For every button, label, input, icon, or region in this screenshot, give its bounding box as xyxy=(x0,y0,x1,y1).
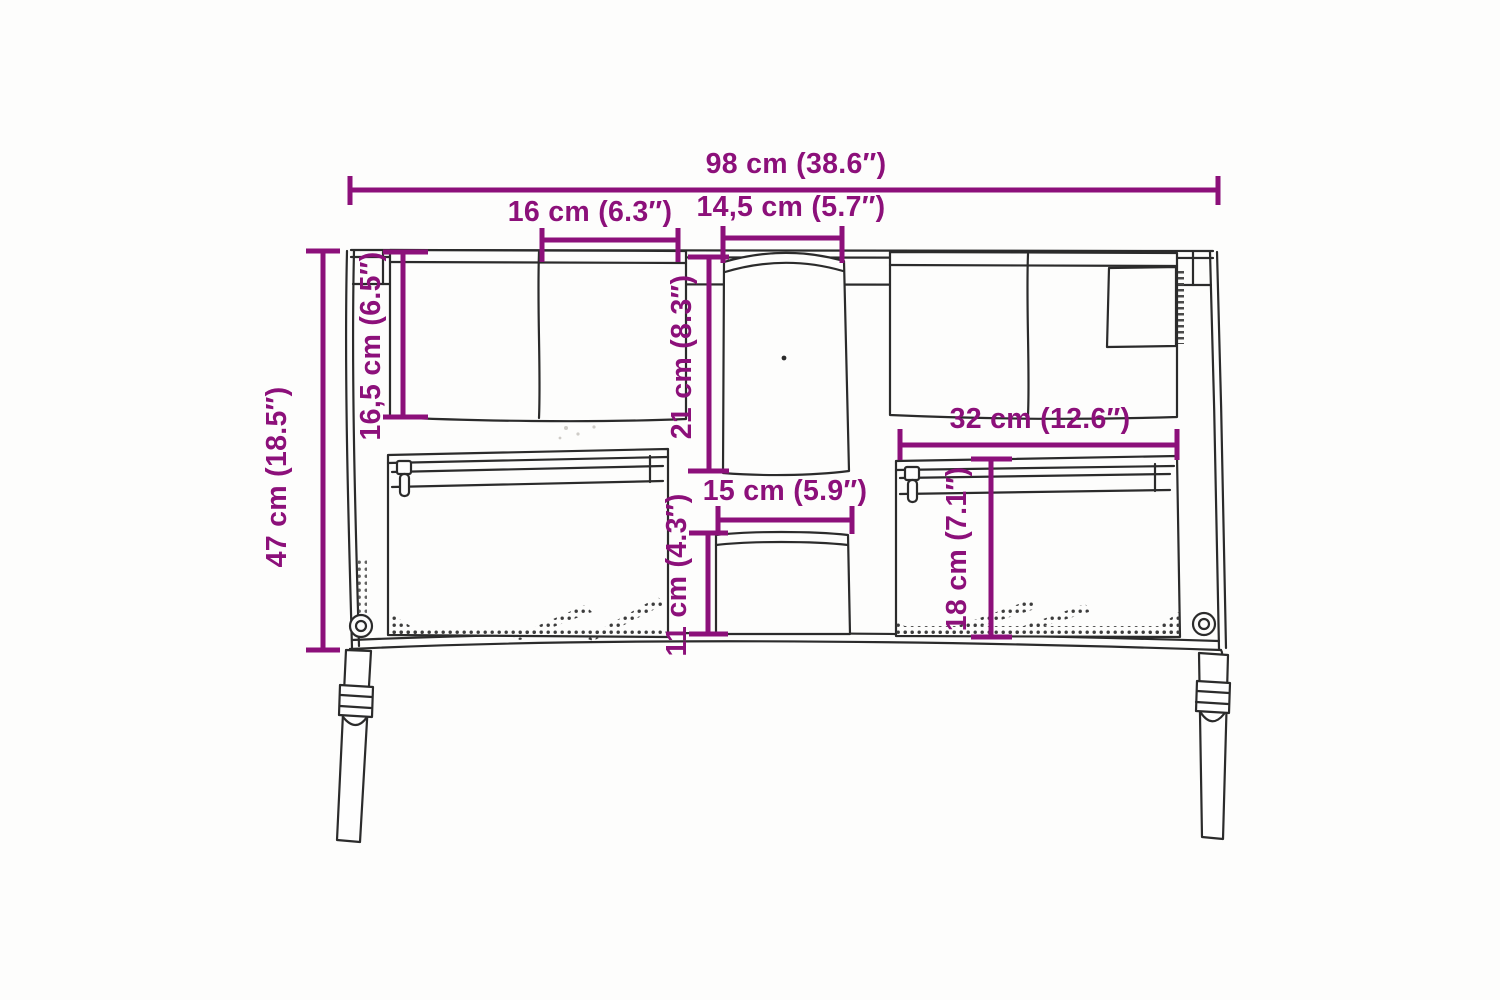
center-pocket xyxy=(723,253,849,475)
right-grommet xyxy=(1193,613,1215,635)
top-left-open-pocket xyxy=(390,250,686,421)
dim-total-height-label: 47 cm (18.5″) xyxy=(261,387,293,568)
left-zipper-slider xyxy=(397,461,411,496)
dim-bottom-center-pocket-width: 15 cm (5.9″) xyxy=(703,475,868,534)
dim-top-left-pocket-depth-label: 16,5 cm (6.5″) xyxy=(355,252,387,441)
organizer-dimension-drawing: 98 cm (38.6″) 16 cm (6.3″) 14,5 cm (5.7″… xyxy=(0,0,1500,1000)
organizer-line-art xyxy=(337,250,1230,842)
bottom-center-pocket xyxy=(716,532,850,634)
dim-center-pocket-depth-label: 21 cm (8.3″) xyxy=(666,275,698,440)
left-grommet xyxy=(350,615,372,637)
dim-center-pocket-depth: 21 cm (8.3″) xyxy=(666,257,729,471)
dim-total-height: 47 cm (18.5″) xyxy=(261,251,340,650)
bottom-left-zip-pocket xyxy=(358,449,668,641)
dim-top-center-pocket-width-label: 14,5 cm (5.7″) xyxy=(697,191,886,223)
right-strap xyxy=(1196,653,1230,839)
dim-bottom-center-pocket-width-label: 15 cm (5.9″) xyxy=(703,475,868,507)
dimension-diagram-canvas: 98 cm (38.6″) 16 cm (6.3″) 14,5 cm (5.7″… xyxy=(0,0,1500,1000)
panel-right-edge xyxy=(1210,252,1226,649)
top-left-pocket-divider xyxy=(538,252,539,418)
bottom-right-zip-pocket xyxy=(896,456,1180,639)
dim-top-left-pocket-width-label: 16 cm (6.3″) xyxy=(508,196,673,228)
top-right-pocket-divider xyxy=(1027,254,1028,415)
center-pocket-snap-dot xyxy=(782,356,787,361)
top-right-open-pocket xyxy=(890,252,1181,419)
dim-bottom-center-pocket-depth-label: 11 cm (4.3″) xyxy=(661,493,693,656)
right-zipper-slider xyxy=(905,467,919,502)
left-strap xyxy=(337,650,373,842)
dim-total-width-label: 98 cm (38.6″) xyxy=(706,148,887,180)
dim-right-zip-pocket-width-label: 32 cm (12.6″) xyxy=(950,403,1131,435)
dim-right-zip-pocket-depth-label: 18 cm (7.1″) xyxy=(941,467,973,632)
card-pocket xyxy=(1107,267,1176,347)
